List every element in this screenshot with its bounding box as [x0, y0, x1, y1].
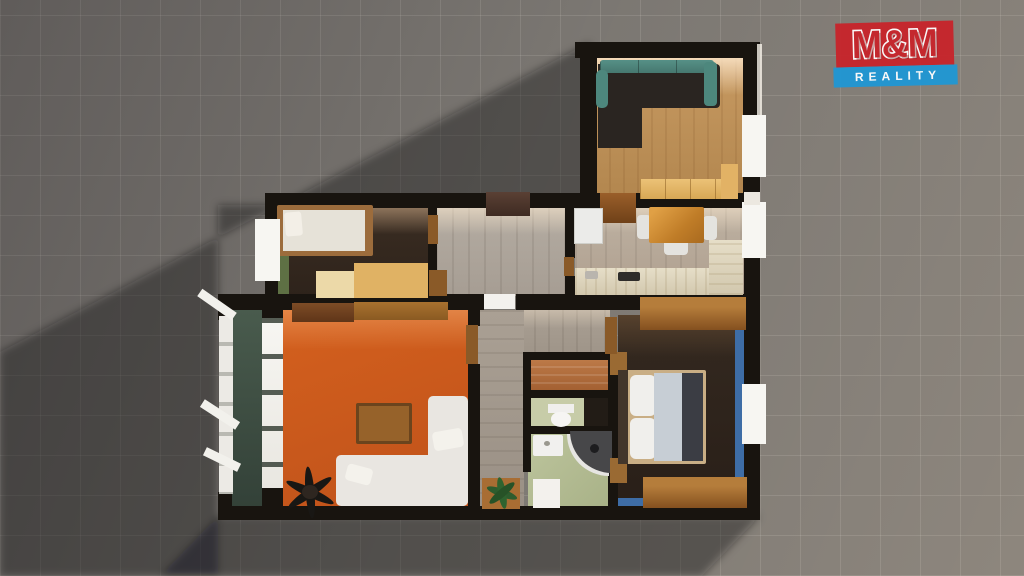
wall-storage-wc — [523, 390, 618, 398]
bed-double-pillow-top — [630, 375, 656, 416]
wall-hall-kitchen-lower — [565, 276, 575, 296]
door-bedroom2 — [605, 317, 617, 354]
logo-mm-box: M&M — [835, 20, 954, 67]
wall-balcony-window-cap-bottom — [262, 486, 283, 508]
bed-single-pillow — [284, 211, 303, 236]
dresser-light — [354, 263, 428, 298]
wall-living-hall-lower — [468, 364, 480, 508]
scene: M&M REALITY — [0, 0, 1024, 576]
bathroom-sink-faucet — [544, 441, 550, 446]
wall-bedroom2-right-upper — [744, 294, 760, 385]
bed-double-pillow-bottom — [630, 418, 656, 459]
wall-living-hall-upper — [468, 310, 480, 326]
sideboard-dark — [292, 303, 354, 322]
door-hall-connection — [484, 294, 515, 309]
storage-floor — [530, 359, 608, 392]
coffee-table — [356, 403, 412, 444]
wall-toproom-top — [575, 42, 760, 58]
window-bedroom2-right — [742, 384, 766, 444]
wall-kitchen-right — [744, 256, 760, 296]
sideboard-light — [354, 302, 448, 320]
wall-storage-top — [523, 352, 618, 360]
corner-sofa-teal-end-right — [704, 62, 717, 106]
corner-sofa-teal-cushions — [600, 60, 714, 73]
door-living-room — [466, 325, 478, 364]
dining-chair-right — [703, 216, 717, 240]
door-bedroom1-south — [429, 270, 447, 296]
kitchen-counter-right — [709, 240, 743, 295]
window-wall-living-balcony — [262, 318, 283, 488]
wardrobe-bottom — [643, 477, 747, 508]
hall-cabinet — [486, 192, 530, 216]
door-bathroom — [533, 479, 560, 508]
toilet-bowl — [551, 412, 571, 427]
window-livingtop-right — [742, 115, 766, 177]
dining-table — [649, 207, 704, 243]
window-kitchen-right — [742, 202, 766, 258]
logo-reality-box: REALITY — [833, 64, 957, 87]
wall-toproom-left — [580, 42, 597, 195]
window-bedroom1-left — [255, 219, 280, 281]
sunlit-wall-edge-top-right — [757, 44, 762, 115]
wardrobe-top — [640, 297, 746, 330]
door-kitchen — [564, 257, 574, 276]
wall-corridor-wet — [523, 352, 531, 472]
shower-drain — [590, 444, 599, 453]
duct-space — [584, 396, 608, 428]
corner-sofa-teal-arm-left — [596, 70, 608, 108]
cooktop — [618, 272, 640, 281]
bed-double-foot-runner — [682, 373, 703, 461]
realty-logo: M&M REALITY — [832, 18, 960, 91]
kitchen-sink — [585, 271, 598, 279]
fridge — [574, 208, 603, 244]
bed-double-headboard — [618, 370, 628, 464]
balcony-floor — [232, 302, 263, 508]
bench-corner-seat — [721, 164, 738, 199]
plant-dark-pot — [302, 485, 318, 499]
hall-upper-floor — [436, 208, 566, 296]
door-bedroom1 — [428, 215, 438, 244]
sunlit-wall-corner-kitchen — [744, 192, 760, 205]
bed-double-blanket — [654, 373, 684, 461]
logo-reality-text: REALITY — [850, 68, 942, 84]
kitchen-tall-cabinet — [600, 193, 636, 223]
logo-mm-text: M&M — [851, 20, 938, 68]
desk-light — [316, 271, 354, 298]
